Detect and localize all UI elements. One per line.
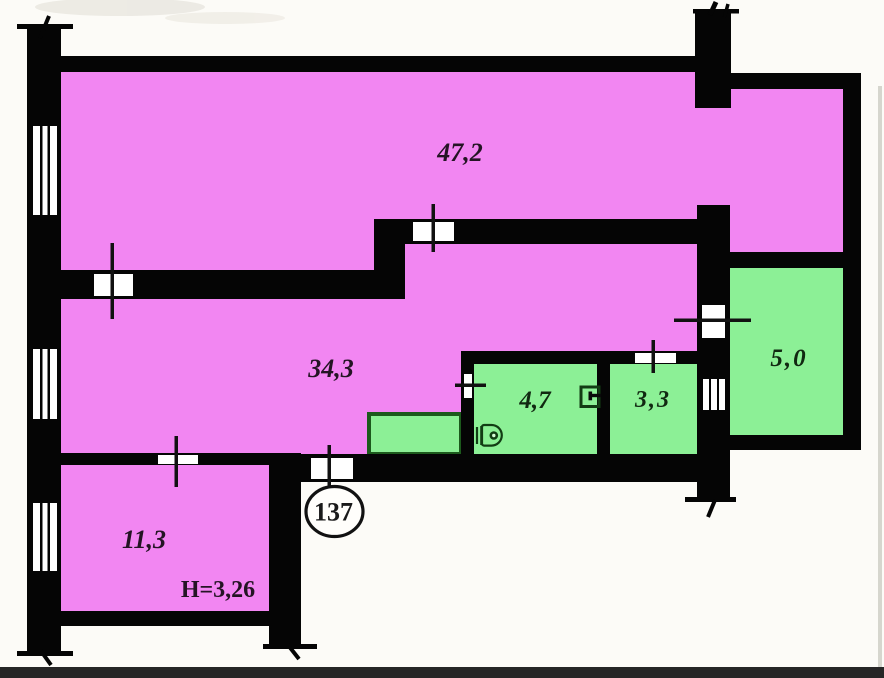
svg-text:137: 137 <box>314 498 353 527</box>
svg-text:47,2: 47,2 <box>436 138 483 167</box>
svg-text:H=3,26: H=3,26 <box>181 577 255 603</box>
svg-text:3,3: 3,3 <box>634 387 671 413</box>
svg-text:5,0: 5,0 <box>770 345 807 372</box>
svg-text:4,7: 4,7 <box>518 387 552 414</box>
svg-text:11,3: 11,3 <box>122 525 166 554</box>
svg-text:34,3: 34,3 <box>307 354 354 383</box>
